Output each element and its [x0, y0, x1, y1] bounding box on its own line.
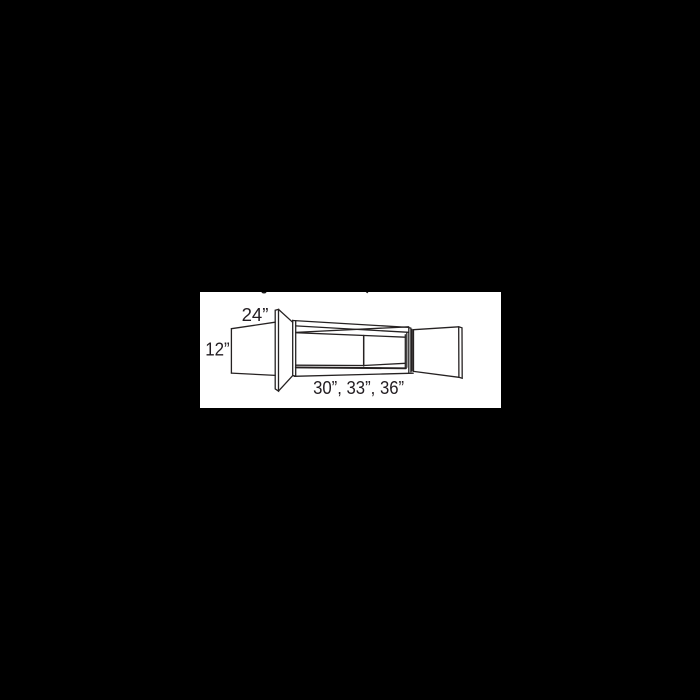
svg-text:24”: 24” [242, 304, 269, 325]
svg-text:30”, 33”, 36”: 30”, 33”, 36” [313, 377, 404, 398]
svg-text:12”: 12” [205, 339, 230, 360]
